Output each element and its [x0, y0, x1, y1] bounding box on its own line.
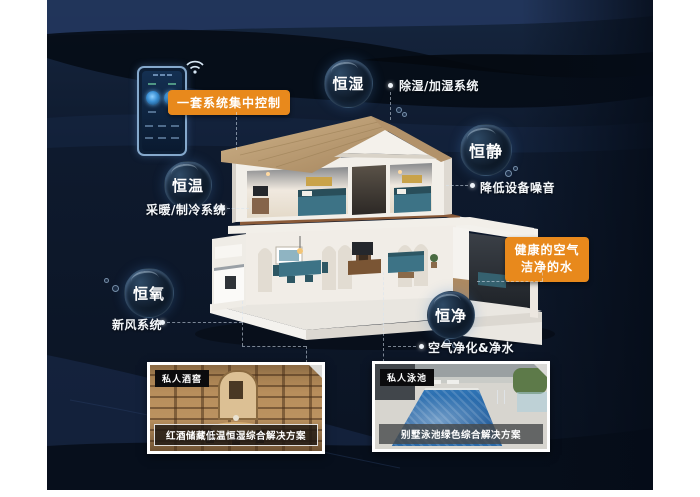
connector-dot [160, 320, 165, 325]
corner-fold [534, 364, 547, 377]
bubble-constant-purity: 恒净 [427, 291, 475, 339]
phone-readout-row [142, 83, 182, 85]
feature-label-quiet: 降低设备噪音 [480, 179, 555, 196]
bubble-label: 恒静 [469, 138, 503, 162]
wine-arch [218, 370, 258, 420]
small-bubble [396, 107, 402, 113]
wifi-icon [184, 57, 206, 75]
connector-line [236, 112, 237, 150]
bubble-constant-oxygen: 恒氧 [124, 268, 174, 318]
pool-card: 私人泳池 别墅泳池绿色综合解决方案 [372, 361, 550, 452]
connector-line [167, 322, 242, 323]
bubble-label: 恒温 [172, 175, 204, 196]
bubble-constant-quiet: 恒静 [460, 124, 512, 176]
connector-line [542, 267, 543, 281]
bubble-label: 恒氧 [133, 283, 165, 304]
card-tag-pool: 私人泳池 [380, 369, 434, 386]
pool-ladder [497, 390, 505, 404]
phone-readout-row [142, 137, 182, 139]
connector-line [446, 185, 468, 186]
card-caption-wine: 红酒储藏低温恒湿综合解决方案 [154, 424, 318, 446]
connector-dot [470, 183, 475, 188]
wine-cellar-photo: 私人酒窖 红酒储藏低温恒湿综合解决方案 [150, 365, 322, 451]
connector-line [227, 208, 249, 209]
connector-line [242, 301, 243, 346]
wave-dark-2 [360, 52, 653, 78]
connector-line [477, 281, 543, 282]
small-bubble [112, 285, 119, 292]
feature-label-humidity: 除湿/加湿系统 [399, 77, 479, 94]
small-bubble [505, 170, 512, 177]
connector-line [383, 272, 384, 346]
card-tag-wine: 私人酒窖 [155, 370, 209, 387]
feature-label-temperature: 采暖/制冷系统 [146, 201, 226, 218]
feature-label-oxygen: 新风系统 [112, 316, 162, 333]
healthy-badge-line1: 健康的空气 [509, 242, 585, 259]
wave-bottom-dark [47, 428, 653, 490]
healthy-badge-line2: 洁净的水 [509, 259, 585, 276]
connector-line [306, 346, 307, 363]
card-caption-pool: 别墅泳池绿色综合解决方案 [379, 424, 543, 444]
pool-lounger [447, 380, 459, 384]
connector-dot [388, 83, 393, 88]
wine-cellar-card: 私人酒窖 红酒储藏低温恒湿综合解决方案 [147, 362, 325, 454]
bubble-label: 恒湿 [332, 73, 364, 94]
small-bubble [402, 112, 407, 117]
connector-line [242, 346, 306, 347]
bubble-constant-humidity: 恒湿 [324, 59, 373, 108]
infographic-canvas: 一套系统集中控制 健康的空气 洁净的水 恒湿 恒静 恒温 恒氧 恒净 除湿/加湿… [0, 0, 700, 497]
connector-line [388, 346, 416, 347]
wave-top-light [47, 0, 653, 36]
healthy-air-water-badge: 健康的空气 洁净的水 [505, 237, 589, 282]
feature-label-purity: 空气净化&净水 [428, 339, 514, 356]
small-bubble [104, 278, 109, 283]
corner-fold [309, 365, 322, 378]
phone-header [142, 74, 182, 77]
small-bubble [513, 166, 518, 171]
central-control-badge: 一套系统集中控制 [168, 90, 290, 115]
connector-line [390, 92, 391, 120]
bubble-label: 恒净 [435, 305, 467, 326]
connector-dot [419, 344, 424, 349]
connector-dot [220, 206, 225, 211]
pool-photo: 私人泳池 别墅泳池绿色综合解决方案 [375, 364, 547, 449]
connector-line [383, 348, 384, 362]
phone-readout-row [142, 125, 182, 127]
phone-dial-left [146, 91, 160, 105]
wine-flower [233, 415, 239, 421]
pool-glass-fence [517, 392, 547, 412]
